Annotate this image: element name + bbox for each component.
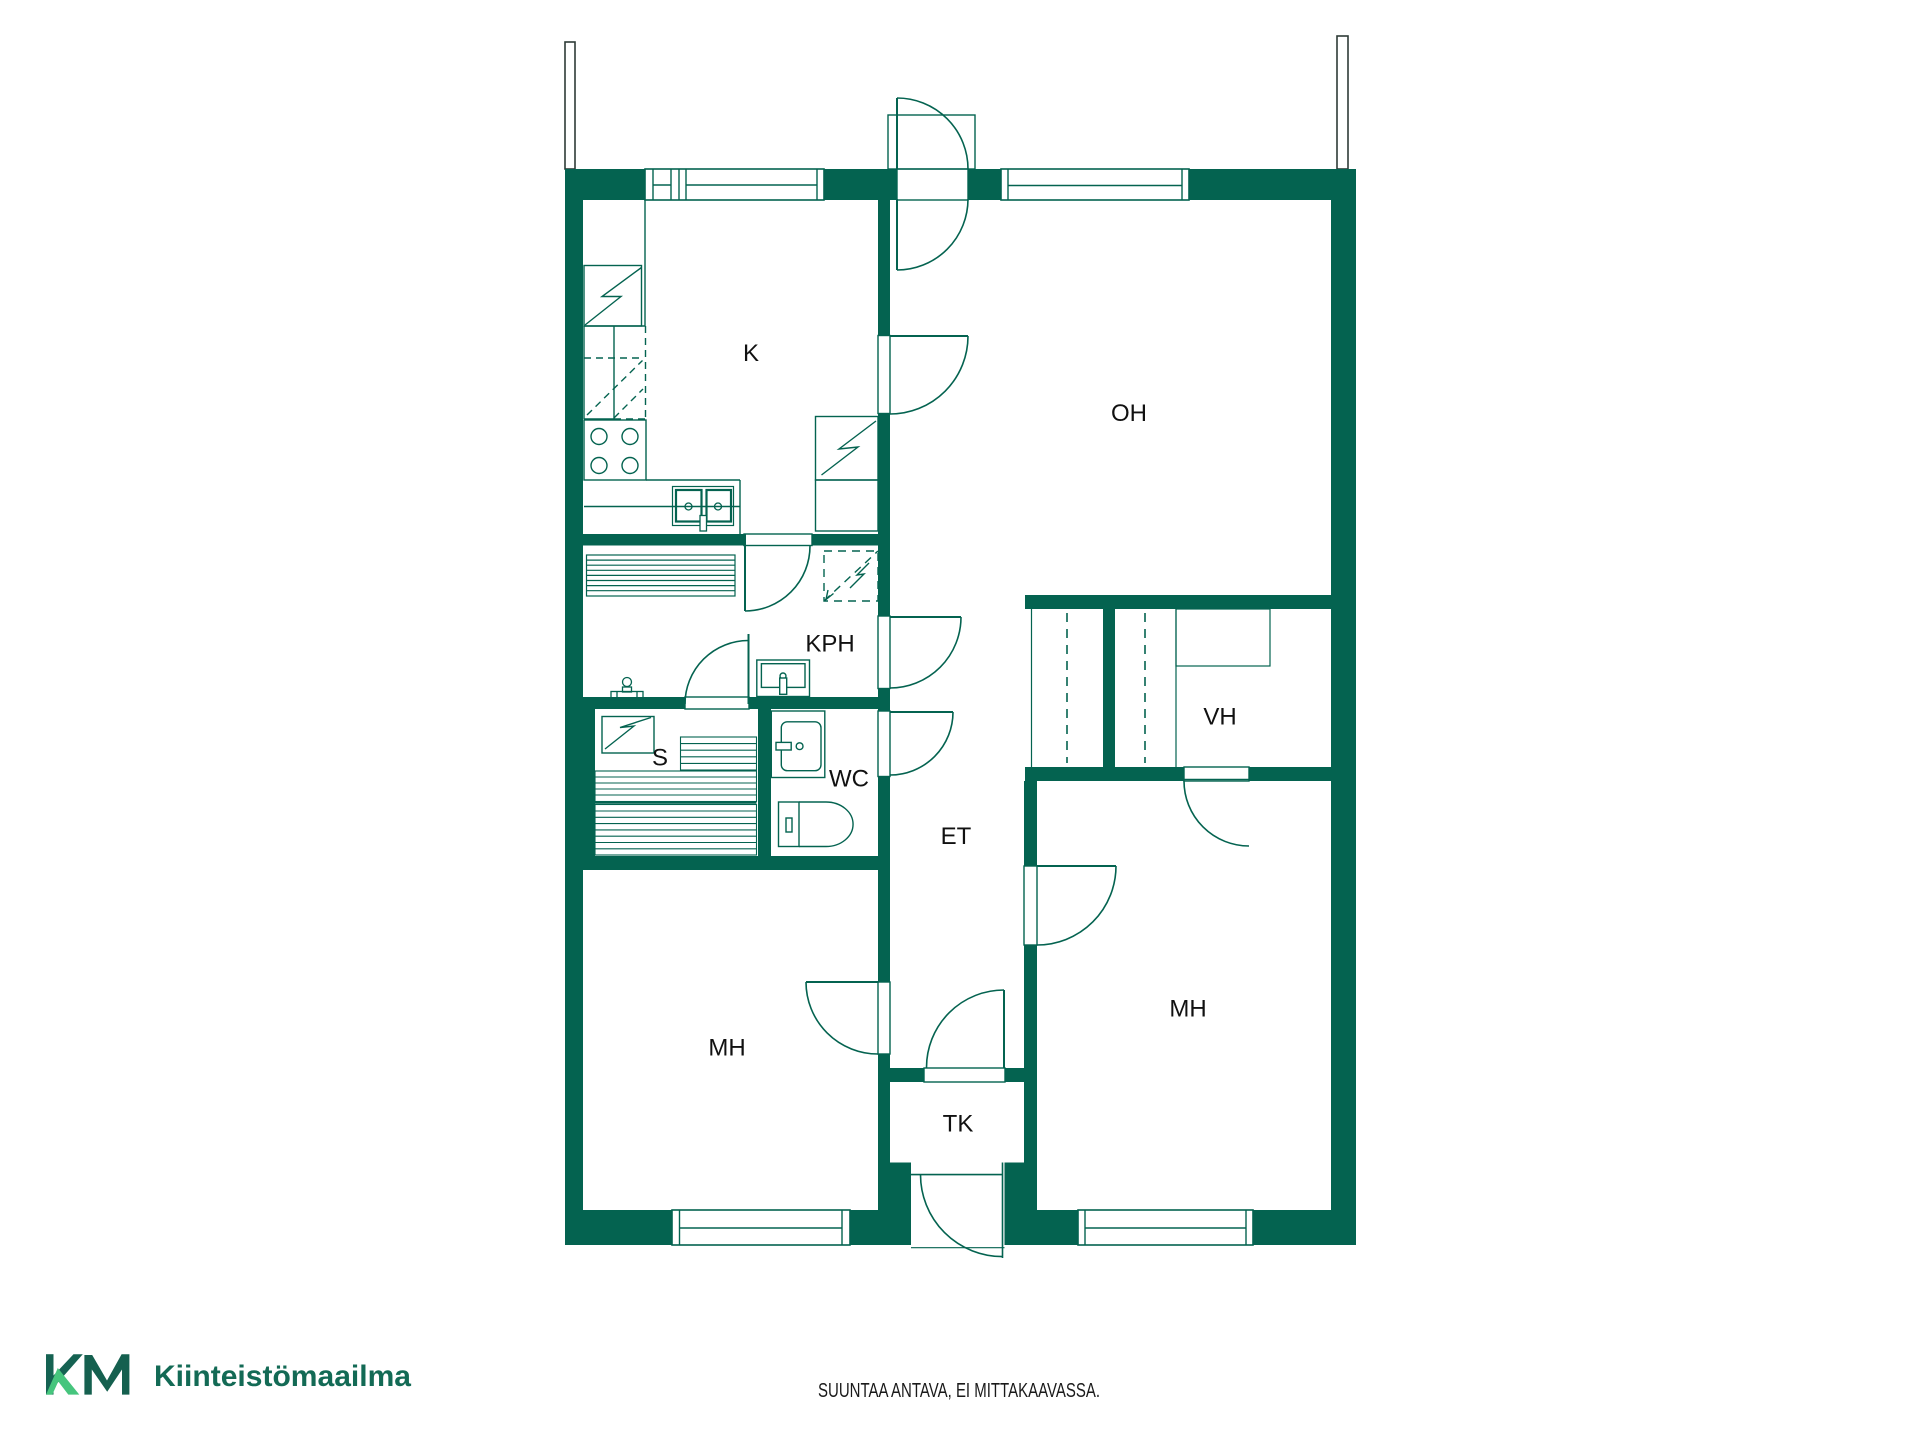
svg-text:TK: TK (943, 1111, 974, 1138)
svg-text:KPH: KPH (805, 631, 854, 658)
svg-text:ET: ET (941, 823, 972, 850)
svg-text:K: K (743, 340, 759, 367)
svg-text:Kiinteistömaailma: Kiinteistömaailma (154, 1360, 411, 1393)
svg-text:SUUNTAA ANTAVA, EI MITTAKAAVAS: SUUNTAA ANTAVA, EI MITTAKAAVASSA. (818, 1380, 1100, 1402)
svg-text:OH: OH (1111, 400, 1147, 427)
svg-text:VH: VH (1203, 704, 1236, 731)
svg-text:MH: MH (708, 1035, 745, 1062)
svg-text:MH: MH (1169, 996, 1206, 1023)
svg-text:S: S (652, 745, 668, 772)
svg-text:WC: WC (829, 766, 869, 793)
